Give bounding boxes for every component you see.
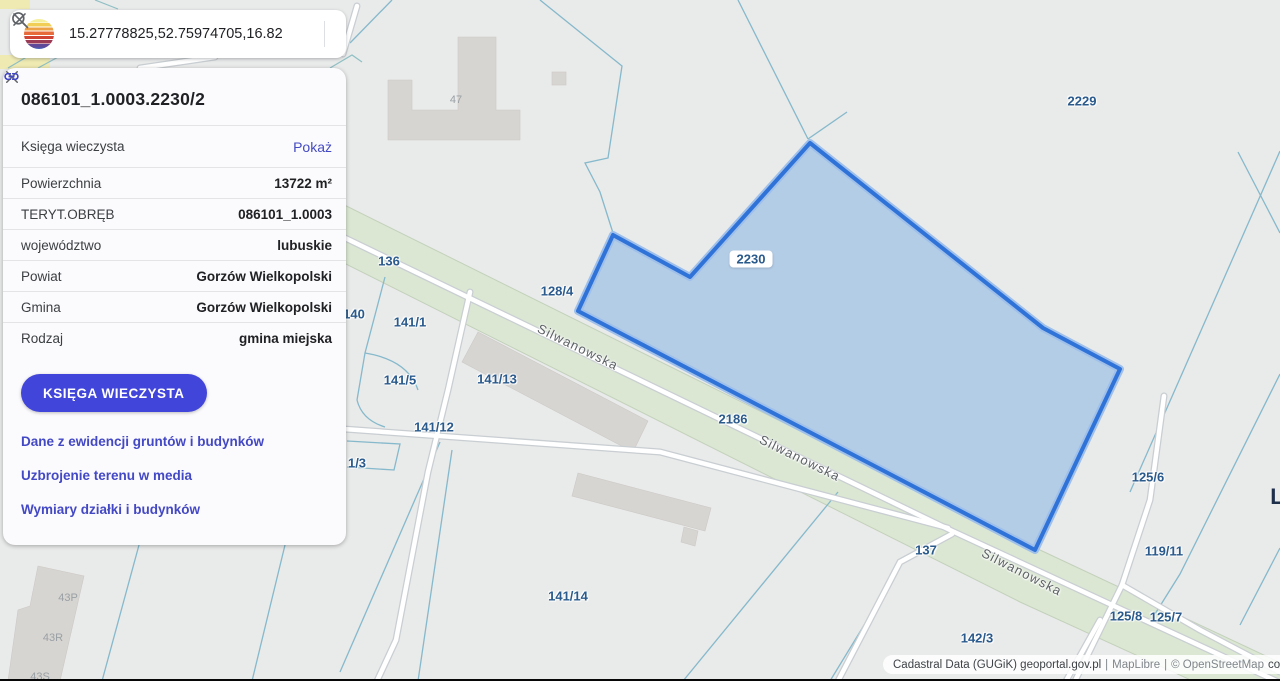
parcel-label[interactable]: 141/12 bbox=[414, 420, 454, 435]
row-value: lubuskie bbox=[277, 238, 332, 253]
parcel-label[interactable]: 125/8 bbox=[1110, 609, 1143, 624]
selected-parcel-label[interactable]: 2230 bbox=[730, 251, 773, 268]
pokaz-label: Pokaż bbox=[293, 139, 332, 155]
building-label: 43P bbox=[58, 592, 78, 604]
map-attribution: Cadastral Data (GUGiK) geoportal.gov.pl … bbox=[883, 655, 1280, 674]
search-clear-button[interactable] bbox=[332, 32, 336, 36]
street-label: Silwanowska bbox=[757, 432, 843, 484]
search-divider bbox=[324, 21, 325, 47]
row-powierzchnia: Powierzchnia 13722 m² bbox=[3, 168, 346, 198]
row-label: Gmina bbox=[21, 300, 61, 315]
parcel-label[interactable]: 2229 bbox=[1068, 94, 1097, 109]
row-teryt-obreb: TERYT.OBRĘB 086101_1.0003 bbox=[3, 199, 346, 229]
search-input[interactable] bbox=[67, 25, 313, 43]
panel-links: Dane z ewidencji gruntów i budynków Uzbr… bbox=[3, 418, 346, 540]
link-uzbrojenie-terenu[interactable]: Uzbrojenie terenu w media bbox=[3, 458, 346, 492]
panel-close-button[interactable] bbox=[324, 98, 328, 102]
search-bar bbox=[10, 10, 346, 58]
app-window: 22292230136128/4140141/1141/5141/13141/1… bbox=[0, 0, 1280, 681]
attribution-tail: contribu bbox=[1268, 659, 1280, 671]
row-value: 086101_1.0003 bbox=[238, 207, 332, 222]
parcel-label[interactable]: 136 bbox=[378, 254, 400, 269]
building-label: 47 bbox=[450, 94, 462, 106]
row-rodzaj: Rodzaj gmina miejska bbox=[3, 323, 346, 353]
street-label: Silwanowska bbox=[535, 321, 621, 373]
search-button[interactable] bbox=[313, 32, 317, 36]
row-value: Gorzów Wielkopolski bbox=[196, 300, 332, 315]
row-label: Powierzchnia bbox=[21, 176, 101, 191]
parcel-label[interactable]: 140 bbox=[343, 307, 365, 322]
attribution-osm[interactable]: © OpenStreetMap bbox=[1171, 659, 1264, 671]
attribution-cadastral[interactable]: Cadastral Data (GUGiK) geoportal.gov.pl bbox=[893, 659, 1101, 671]
parcel-label[interactable]: 1/3 bbox=[348, 456, 366, 471]
parcel-label[interactable]: 119/11 bbox=[1145, 544, 1183, 559]
parcel-label[interactable]: 141/14 bbox=[548, 589, 588, 604]
row-gmina: Gmina Gorzów Wielkopolski bbox=[3, 292, 346, 322]
row-label: Rodzaj bbox=[21, 331, 63, 346]
parcel-label[interactable]: 141/5 bbox=[384, 373, 417, 388]
row-value: gmina miejska bbox=[239, 331, 332, 346]
link-label: Uzbrojenie terenu w media bbox=[21, 468, 192, 483]
parcel-label[interactable]: 128/4 bbox=[541, 284, 574, 299]
close-icon bbox=[10, 10, 29, 29]
link-wymiary-dzialki[interactable]: Wymiary działki i budynków bbox=[3, 492, 346, 526]
cutoff-label: L bbox=[1270, 484, 1280, 510]
parcel-label[interactable]: 137 bbox=[915, 543, 937, 558]
parcel-label[interactable]: 142/3 bbox=[961, 631, 994, 646]
pokaz-link[interactable]: Pokaż bbox=[293, 139, 332, 155]
row-wojewodztwo: województwo lubuskie bbox=[3, 230, 346, 260]
parcel-label[interactable]: 2186 bbox=[719, 412, 748, 427]
attribution-separator: | bbox=[1105, 659, 1108, 671]
building-label: 43R bbox=[43, 632, 63, 644]
parcel-info-panel: 086101_1.0003.2230/2 Księga wieczysta Po… bbox=[3, 68, 346, 545]
row-label: TERYT.OBRĘB bbox=[21, 207, 115, 222]
ksiega-wieczysta-button-label: KSIĘGA WIECZYSTA bbox=[43, 386, 185, 401]
street-label: Silwanowska bbox=[979, 545, 1065, 598]
row-powiat: Powiat Gorzów Wielkopolski bbox=[3, 261, 346, 291]
parcel-label[interactable]: 125/7 bbox=[1150, 610, 1183, 625]
attribution-separator: | bbox=[1164, 659, 1167, 671]
link-label: Wymiary działki i budynków bbox=[21, 502, 200, 517]
parcel-title: 086101_1.0003.2230/2 bbox=[21, 89, 205, 110]
row-value: Gorzów Wielkopolski bbox=[196, 269, 332, 284]
link-icon bbox=[3, 68, 20, 85]
row-label: Powiat bbox=[21, 269, 62, 284]
parcel-label[interactable]: 141/13 bbox=[477, 372, 517, 387]
row-ksiega-wieczysta: Księga wieczysta Pokaż bbox=[3, 126, 346, 167]
row-label: Księga wieczysta bbox=[21, 139, 125, 154]
row-value: 13722 m² bbox=[274, 176, 332, 191]
parcel-label[interactable]: 141/1 bbox=[394, 315, 427, 330]
link-label: Dane z ewidencji gruntów i budynków bbox=[21, 434, 264, 449]
link-dane-ewidencji[interactable]: Dane z ewidencji gruntów i budynków bbox=[3, 424, 346, 458]
row-label: województwo bbox=[21, 238, 101, 253]
ksiega-wieczysta-button[interactable]: KSIĘGA WIECZYSTA bbox=[21, 374, 207, 412]
parcel-label[interactable]: 125/6 bbox=[1132, 470, 1165, 485]
attribution-maplibre[interactable]: MapLibre bbox=[1112, 659, 1160, 671]
